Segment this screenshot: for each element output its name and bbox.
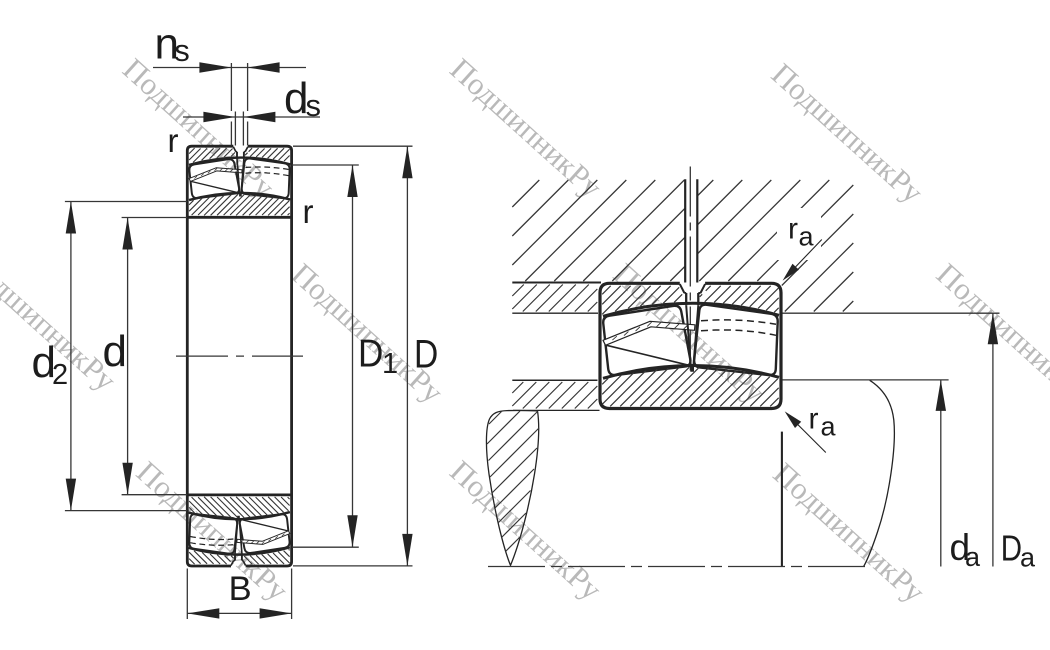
svg-text:r: r bbox=[788, 213, 798, 246]
svg-text:r: r bbox=[303, 193, 314, 230]
svg-text:D: D bbox=[414, 332, 438, 376]
svg-text:a: a bbox=[1020, 543, 1036, 573]
svg-text:a: a bbox=[821, 412, 837, 442]
svg-text:s: s bbox=[174, 33, 190, 68]
svg-text:a: a bbox=[965, 542, 981, 572]
svg-text:1: 1 bbox=[382, 348, 398, 380]
svg-text:r: r bbox=[168, 122, 179, 159]
svg-text:D: D bbox=[1001, 528, 1022, 568]
svg-text:d: d bbox=[103, 327, 127, 376]
svg-text:2: 2 bbox=[52, 359, 68, 391]
svg-text:s: s bbox=[306, 88, 322, 123]
svg-text:B: B bbox=[229, 570, 252, 608]
svg-text:a: a bbox=[799, 222, 815, 252]
svg-text:r: r bbox=[809, 403, 819, 436]
svg-text:D: D bbox=[358, 331, 383, 375]
